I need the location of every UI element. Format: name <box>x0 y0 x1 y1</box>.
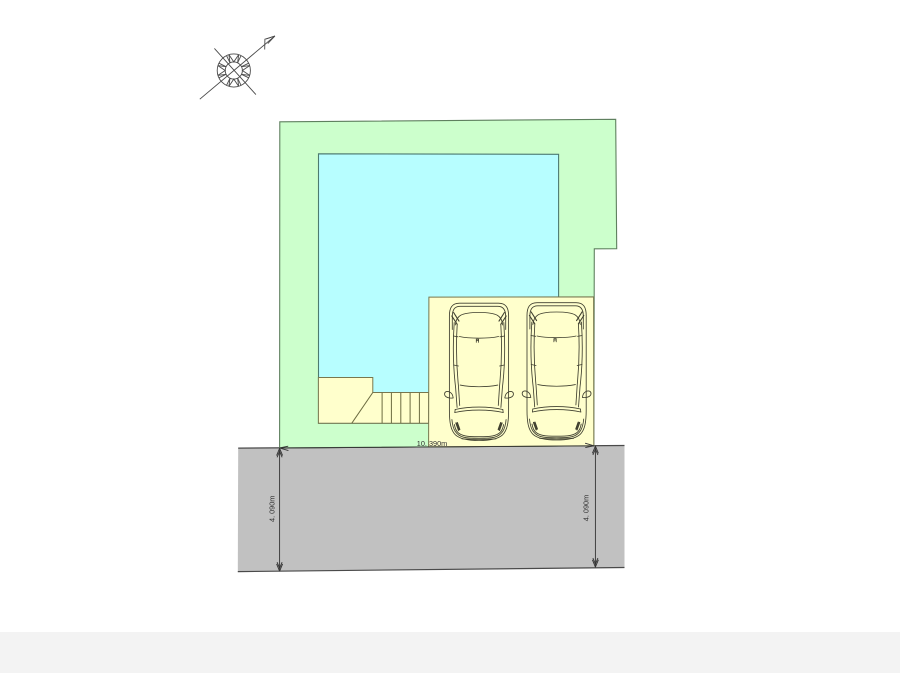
svg-text:10. 390m: 10. 390m <box>417 439 447 448</box>
svg-text:4. 090m: 4. 090m <box>581 495 590 521</box>
svg-text:4. 090m: 4. 090m <box>267 496 276 522</box>
